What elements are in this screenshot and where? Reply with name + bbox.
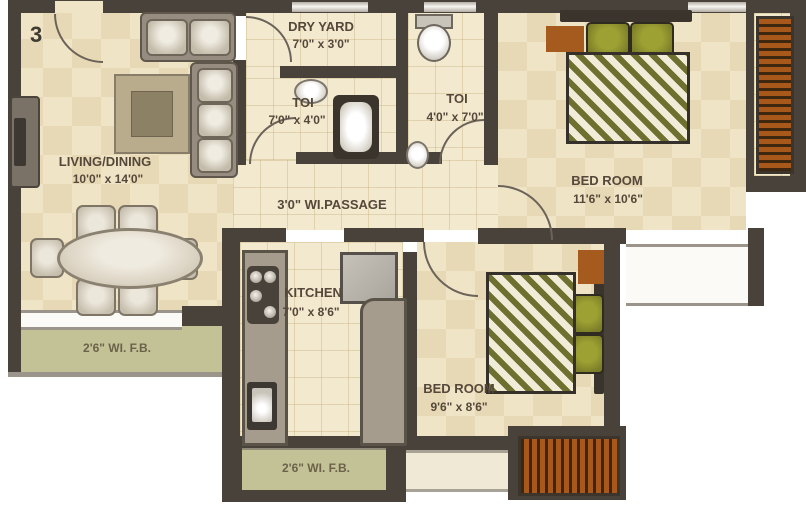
burner [250, 271, 262, 283]
kitchen-sink-bowl [252, 388, 272, 422]
wall [396, 0, 408, 164]
sofa-cushion [197, 138, 233, 173]
water-closet [417, 24, 451, 62]
bedside-rug [546, 26, 584, 52]
dry-yard-window [292, 2, 368, 12]
wall [344, 228, 424, 242]
wall [484, 0, 498, 165]
dry-yard-dims: 7'0" x 3'0" [292, 38, 349, 50]
passage-label: 3'0" WI.PASSAGE [277, 198, 386, 211]
wall [240, 490, 386, 502]
sofa-cushion [146, 19, 188, 56]
dry-yard-label: DRY YARD [288, 20, 354, 33]
floor-plan: 3 LIVING/DINING 10'0" x 14'0" DRY YARD 7… [0, 0, 806, 511]
kitchen-label: KITCHEN [284, 286, 342, 299]
burner [250, 290, 262, 302]
dining-table [57, 228, 203, 289]
double-bed-2 [486, 272, 576, 394]
bathtub-inner [340, 102, 372, 152]
service-counter [360, 298, 407, 446]
toilet-2-label: TOI [446, 92, 467, 105]
bed-headboard [560, 10, 692, 22]
two-seater-sofa [140, 12, 236, 62]
toilet-1-label: TOI [292, 96, 313, 109]
sofa-cushion [197, 103, 233, 138]
sofa-cushion [189, 19, 231, 56]
kitchen-dims: 7'0" x 8'6" [282, 306, 339, 318]
bedroom-2-dims: 9'6" x 8'6" [430, 401, 487, 413]
unit-number: 3 [30, 24, 42, 46]
entrance-door-opening [55, 1, 103, 13]
toilet-2-window [424, 2, 476, 12]
bedroom-1-window [688, 2, 746, 12]
wardrobe-bed1 [756, 16, 794, 174]
refrigerator [340, 252, 398, 304]
bedroom-1-label: BED ROOM [571, 174, 643, 187]
bedroom-2-label: BED ROOM [423, 382, 495, 395]
toilet-2-dims: 4'0" x 7'0" [426, 111, 483, 123]
wall [404, 436, 510, 450]
wall [746, 12, 754, 178]
corner-wardrobe-bed2 [578, 250, 604, 284]
bedroom-1-dims: 11'6" x 10'6" [573, 193, 643, 205]
flower-bed-left-label: 2'6" WI. F.B. [83, 342, 151, 354]
tv-unit [10, 96, 40, 188]
ledge [404, 450, 510, 492]
flower-bed-sill [8, 372, 222, 377]
coffee-table [114, 74, 190, 154]
small-wash-basin [406, 141, 429, 169]
three-seater-sofa [190, 62, 238, 178]
sofa-cushion [197, 68, 233, 103]
gas-stove [247, 266, 279, 324]
wall [748, 228, 764, 306]
wall [222, 436, 242, 502]
passage-floor [233, 160, 498, 230]
toilet-1-dims: 7'0" x 4'0" [268, 114, 325, 126]
living-room-label: LIVING/DINING [59, 155, 151, 168]
wall [746, 176, 806, 192]
wall [280, 66, 398, 78]
bedroom-1-french-window [626, 244, 748, 306]
kitchen-sink [247, 382, 277, 430]
tv-screen [14, 118, 26, 166]
wardrobe-bed2 [518, 436, 620, 496]
living-room-dims: 10'0" x 14'0" [73, 173, 143, 185]
wall [182, 306, 222, 326]
bathtub [333, 95, 379, 159]
flower-bed-bottom-label: 2'6" WI. F.B. [282, 462, 350, 474]
burner [264, 306, 276, 318]
double-bed-1 [566, 52, 690, 144]
burner [264, 271, 276, 283]
coffee-table-top [131, 91, 173, 137]
